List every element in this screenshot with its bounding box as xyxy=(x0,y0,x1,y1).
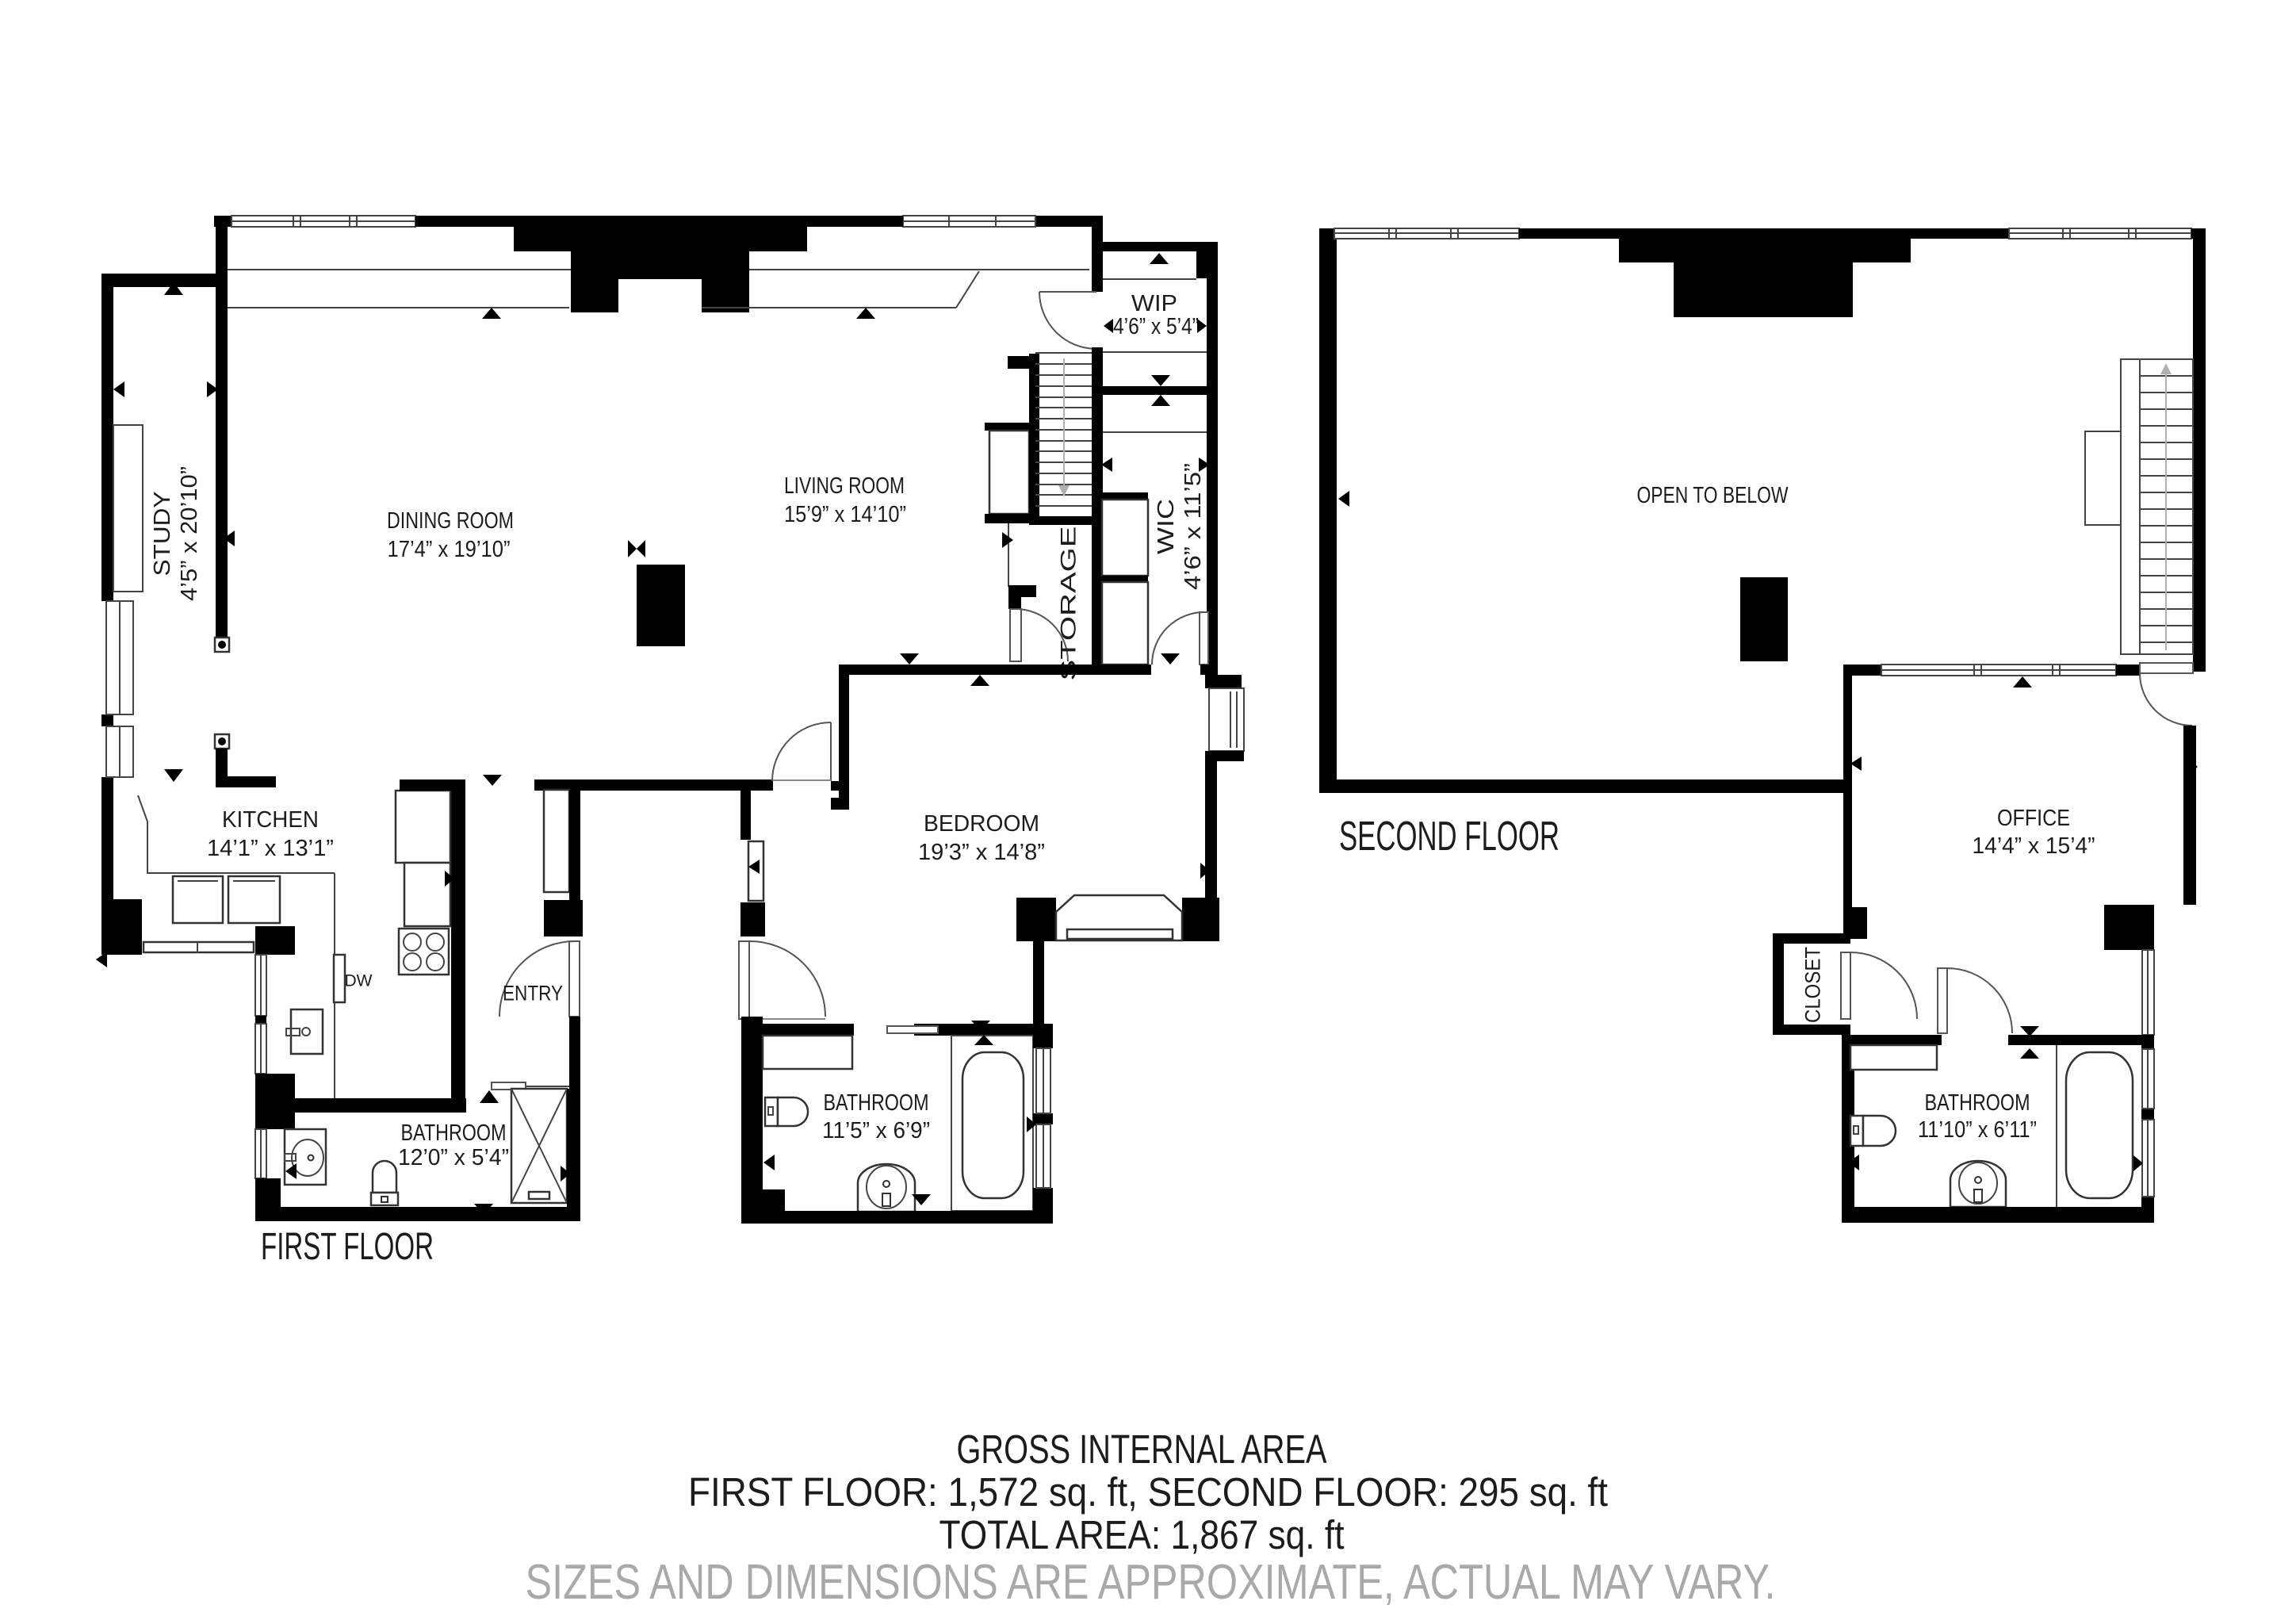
svg-text:15’9” x 14’10”: 15’9” x 14’10” xyxy=(784,502,906,527)
svg-text:4’6” x 11’5”: 4’6” x 11’5” xyxy=(1181,463,1206,590)
svg-text:LIVING ROOM: LIVING ROOM xyxy=(784,473,905,499)
svg-text:CLOSET: CLOSET xyxy=(1800,947,1824,1023)
svg-text:FIRST FLOOR: 1,572 sq. ft, SEC: FIRST FLOOR: 1,572 sq. ft, SECOND FLOOR:… xyxy=(688,1469,1608,1515)
svg-text:ENTRY: ENTRY xyxy=(503,981,563,1005)
svg-text:GROSS INTERNAL AREA: GROSS INTERNAL AREA xyxy=(957,1427,1327,1472)
svg-text:14’4” x 15’4”: 14’4” x 15’4” xyxy=(1973,833,2095,859)
svg-text:BATHROOM: BATHROOM xyxy=(824,1090,929,1116)
svg-text:SIZES AND DIMENSIONS ARE APPRO: SIZES AND DIMENSIONS ARE APPROXIMATE, AC… xyxy=(526,1555,1776,1610)
svg-text:BATHROOM: BATHROOM xyxy=(401,1120,507,1146)
svg-text:19’3” x 14’8”: 19’3” x 14’8” xyxy=(918,840,1045,865)
svg-text:SECOND FLOOR: SECOND FLOOR xyxy=(1339,814,1559,860)
svg-text:TOTAL AREA: 1,867 sq. ft: TOTAL AREA: 1,867 sq. ft xyxy=(939,1512,1345,1557)
svg-text:KITCHEN: KITCHEN xyxy=(222,807,319,833)
svg-text:OPEN TO BELOW: OPEN TO BELOW xyxy=(1637,483,1789,508)
svg-text:DW: DW xyxy=(345,971,373,990)
svg-text:4’5” x 20’10”: 4’5” x 20’10” xyxy=(177,466,202,601)
svg-text:12’0” x 5’4”: 12’0” x 5’4” xyxy=(398,1145,509,1170)
svg-text:DINING ROOM: DINING ROOM xyxy=(387,508,514,534)
svg-text:11’10” x 6’11”: 11’10” x 6’11” xyxy=(1918,1117,2037,1143)
svg-text:BEDROOM: BEDROOM xyxy=(924,811,1039,837)
svg-text:WIC: WIC xyxy=(1154,499,1179,554)
svg-text:11’5” x 6’9”: 11’5” x 6’9” xyxy=(822,1118,930,1143)
svg-text:BATHROOM: BATHROOM xyxy=(1925,1090,2030,1116)
svg-text:17’4” x 19’10”: 17’4” x 19’10” xyxy=(388,537,511,562)
svg-text:WIP: WIP xyxy=(1131,291,1177,316)
svg-text:4’6” x 5’4”: 4’6” x 5’4” xyxy=(1113,314,1199,339)
svg-text:OFFICE: OFFICE xyxy=(1997,806,2070,831)
svg-text:FIRST FLOOR: FIRST FLOOR xyxy=(261,1226,434,1268)
svg-text:14’1” x 13’1”: 14’1” x 13’1” xyxy=(207,836,334,861)
svg-text:STORAGE: STORAGE xyxy=(1056,527,1080,681)
svg-text:STUDY: STUDY xyxy=(150,492,175,576)
